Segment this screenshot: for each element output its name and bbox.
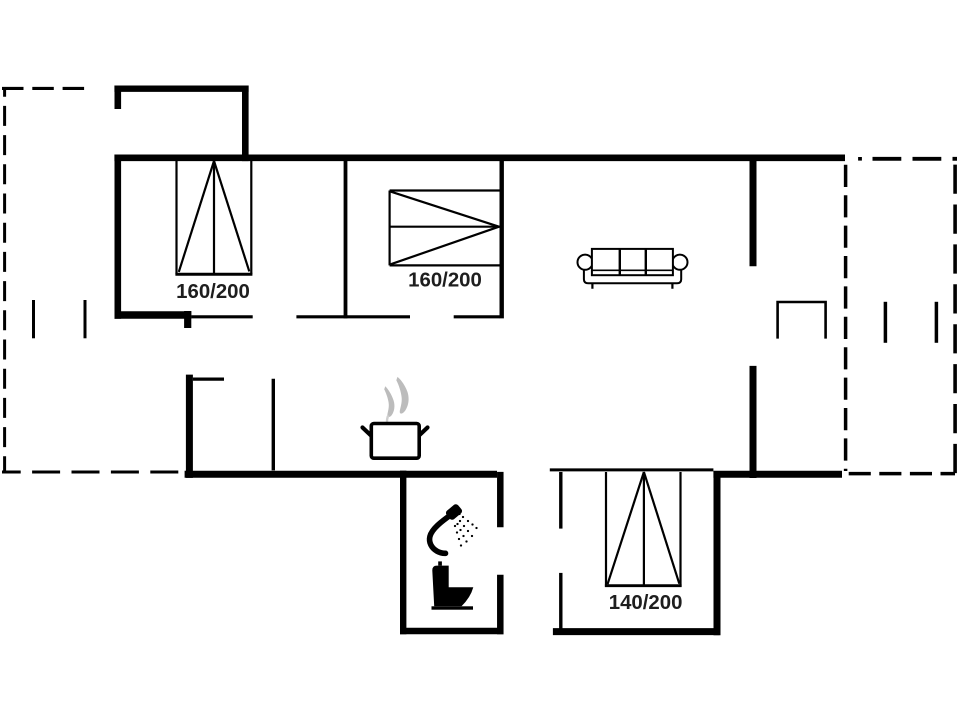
svg-text:160/200: 160/200 (408, 270, 482, 292)
svg-text:140/200: 140/200 (609, 592, 683, 614)
svg-text:160/200: 160/200 (176, 281, 250, 303)
